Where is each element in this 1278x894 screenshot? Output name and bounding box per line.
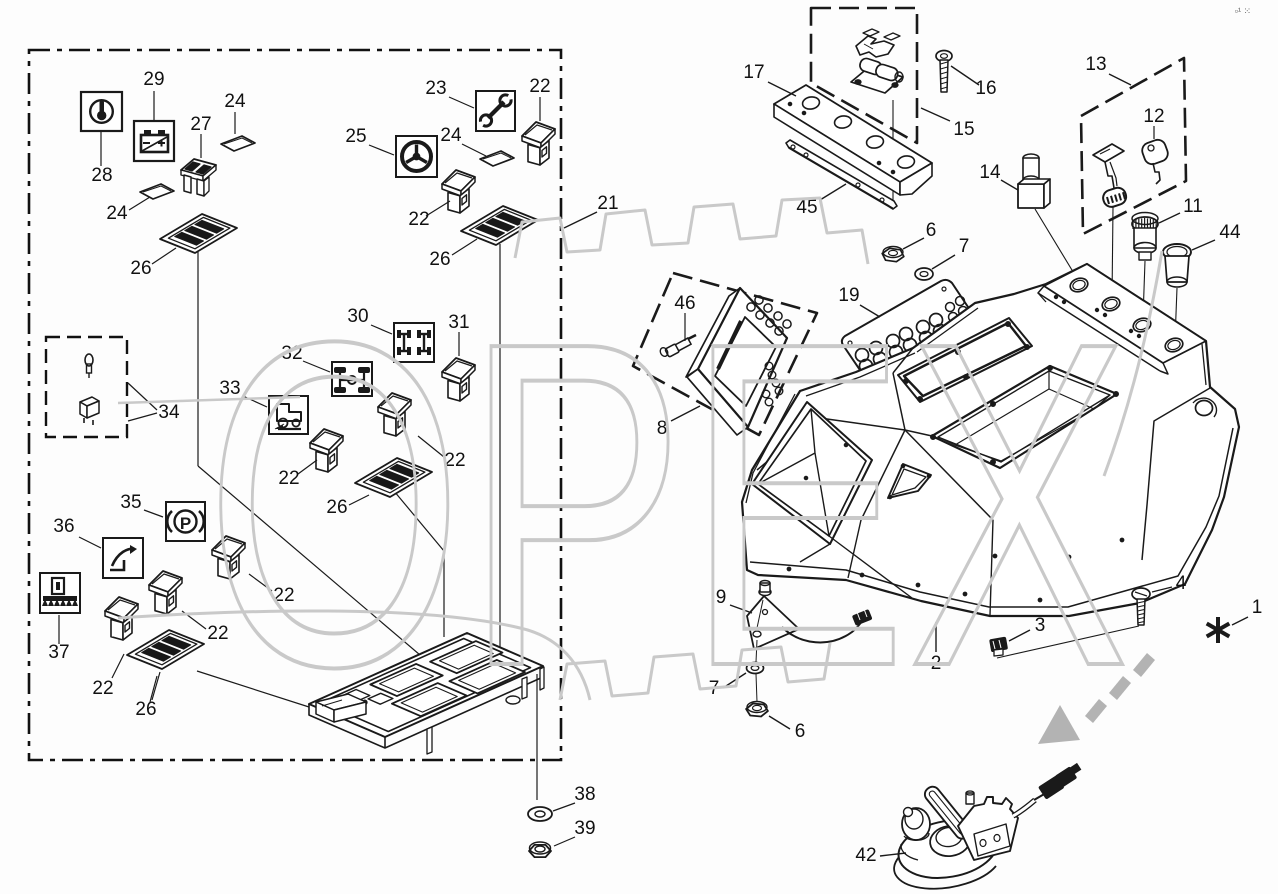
svg-text:28: 28 xyxy=(91,165,112,186)
svg-text:P: P xyxy=(180,514,191,533)
svg-text:26: 26 xyxy=(135,699,156,720)
svg-text:42: 42 xyxy=(855,845,876,866)
svg-text:44: 44 xyxy=(1219,222,1241,243)
svg-text:35: 35 xyxy=(120,492,141,513)
svg-text:24: 24 xyxy=(224,91,246,112)
svg-text:25: 25 xyxy=(345,126,366,147)
svg-text:27: 27 xyxy=(190,114,211,135)
svg-text:OPEX: OPEX xyxy=(205,247,1129,762)
svg-text:21: 21 xyxy=(597,193,618,214)
svg-text:37: 37 xyxy=(48,642,69,663)
svg-text:▫¹ ⁙: ▫¹ ⁙ xyxy=(1235,6,1251,16)
svg-text:36: 36 xyxy=(53,516,74,537)
svg-text:4: 4 xyxy=(1176,573,1187,594)
svg-text:26: 26 xyxy=(130,258,151,279)
svg-text:38: 38 xyxy=(574,784,595,805)
svg-text:24: 24 xyxy=(440,125,462,146)
svg-text:34: 34 xyxy=(158,402,180,423)
svg-text:16: 16 xyxy=(975,78,996,99)
svg-text:15: 15 xyxy=(953,119,974,140)
svg-text:22: 22 xyxy=(529,76,550,97)
svg-text:14: 14 xyxy=(979,162,1001,183)
svg-text:22: 22 xyxy=(92,678,113,699)
svg-text:11: 11 xyxy=(1183,196,1203,217)
svg-text:17: 17 xyxy=(743,62,764,83)
svg-text:6: 6 xyxy=(926,220,937,241)
svg-text:13: 13 xyxy=(1085,54,1106,75)
svg-text:29: 29 xyxy=(143,69,164,90)
svg-text:12: 12 xyxy=(1143,106,1164,127)
svg-text:22: 22 xyxy=(408,209,429,230)
svg-text:24: 24 xyxy=(106,203,128,224)
svg-text:1: 1 xyxy=(1252,597,1263,618)
svg-text:39: 39 xyxy=(574,818,595,839)
svg-text:23: 23 xyxy=(425,78,446,99)
